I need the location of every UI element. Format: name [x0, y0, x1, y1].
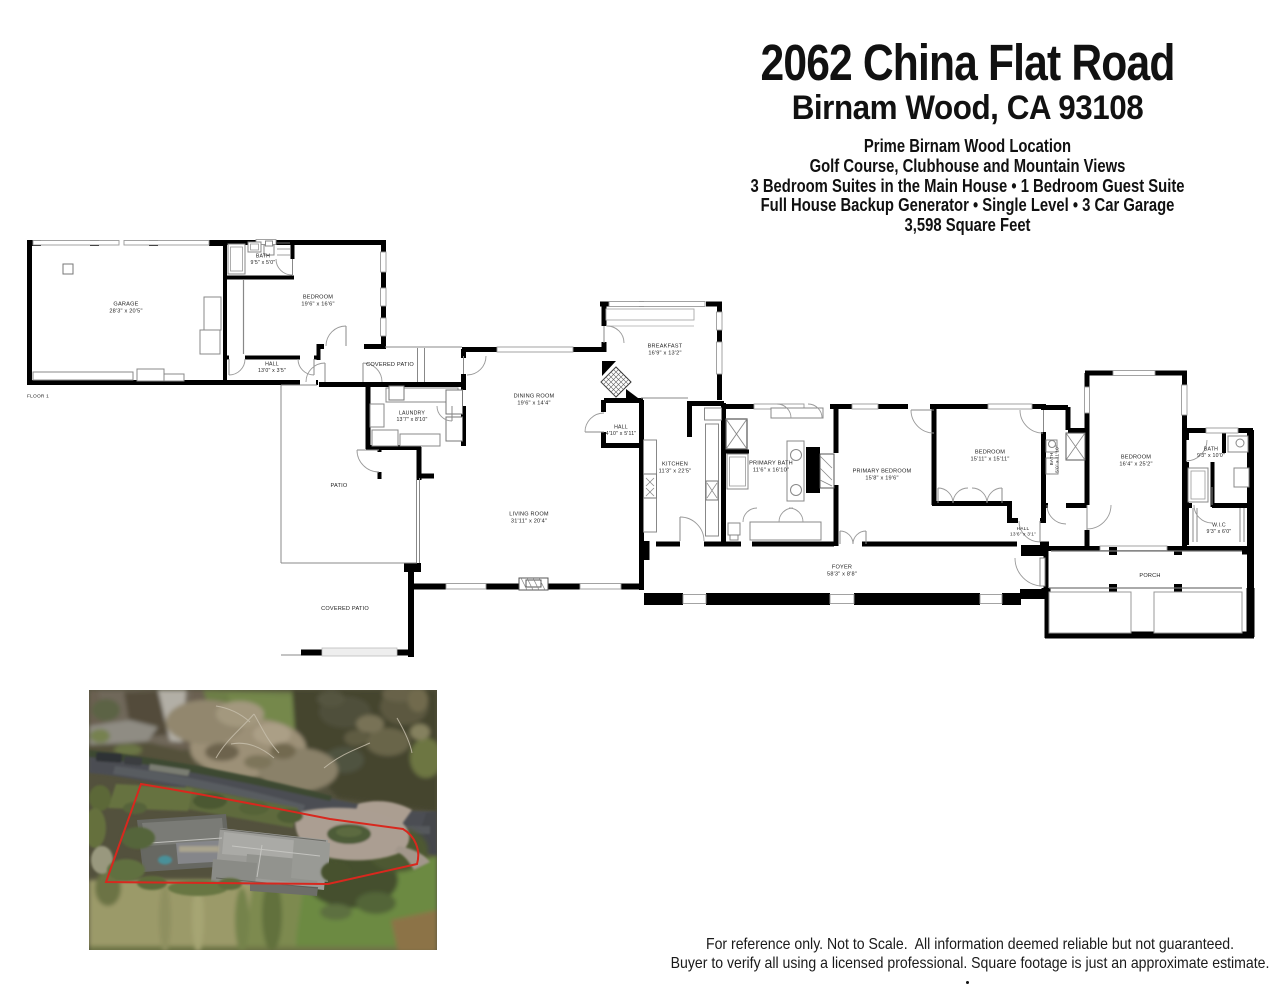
svg-text:4'10" x 5'11": 4'10" x 5'11" [606, 431, 637, 437]
svg-text:BEDROOM: BEDROOM [975, 450, 1005, 456]
svg-text:COVERED PATIO: COVERED PATIO [321, 606, 369, 612]
svg-text:9'3" x 6'0": 9'3" x 6'0" [1207, 529, 1232, 535]
svg-text:LIVING ROOM: LIVING ROOM [509, 512, 549, 518]
svg-text:HALL: HALL [614, 425, 628, 431]
svg-text:COVERED PATIO: COVERED PATIO [366, 362, 414, 368]
svg-text:5'0" x 11'10": 5'0" x 11'10" [1054, 445, 1059, 473]
svg-text:FOYER: FOYER [832, 565, 852, 571]
svg-text:BEDROOM: BEDROOM [303, 295, 333, 301]
svg-text:9'5" x 5'0": 9'5" x 5'0" [251, 260, 276, 266]
svg-text:BATH: BATH [1204, 447, 1218, 453]
svg-text:11'3" x 22'5": 11'3" x 22'5" [659, 468, 692, 474]
svg-text:DINING ROOM: DINING ROOM [514, 394, 555, 400]
svg-text:GARAGE: GARAGE [113, 302, 138, 308]
svg-text:BATH: BATH [1049, 453, 1054, 466]
svg-text:11'6" x 16'10": 11'6" x 16'10" [753, 467, 789, 473]
svg-text:15'11" x 15'11": 15'11" x 15'11" [970, 456, 1009, 462]
svg-text:31'11" x 20'4": 31'11" x 20'4" [511, 518, 547, 524]
svg-text:19'6" x 16'6": 19'6" x 16'6" [301, 301, 334, 307]
svg-text:HALL: HALL [1017, 526, 1030, 532]
svg-text:HALL: HALL [265, 362, 279, 368]
svg-text:BEDROOM: BEDROOM [1121, 455, 1151, 461]
svg-text:BREAKFAST: BREAKFAST [648, 344, 683, 350]
svg-text:W.I.C: W.I.C [1212, 523, 1226, 529]
svg-text:13'6" x 3'1": 13'6" x 3'1" [1010, 532, 1036, 538]
svg-text:FLOOR 1: FLOOR 1 [27, 394, 49, 400]
svg-text:LAUNDRY: LAUNDRY [399, 411, 425, 417]
svg-text:9'3" x 10'0": 9'3" x 10'0" [1197, 453, 1225, 459]
svg-text:PORCH: PORCH [1139, 573, 1160, 579]
svg-text:13'0" x 3'5": 13'0" x 3'5" [258, 368, 286, 374]
svg-text:19'6" x 14'4": 19'6" x 14'4" [517, 400, 550, 406]
svg-text:28'3" x 20'5": 28'3" x 20'5" [109, 308, 142, 314]
svg-text:KITCHEN: KITCHEN [662, 462, 688, 468]
svg-text:16'4" x 25'2": 16'4" x 25'2" [1119, 461, 1152, 467]
svg-text:13'7" x 8'10": 13'7" x 8'10" [396, 417, 427, 423]
svg-text:15'8" x 19'6": 15'8" x 19'6" [865, 475, 898, 481]
svg-text:PRIMARY BEDROOM: PRIMARY BEDROOM [853, 469, 912, 475]
svg-text:16'9" x 13'2": 16'9" x 13'2" [648, 350, 681, 356]
svg-text:PATIO: PATIO [331, 483, 348, 489]
svg-text:PRIMARY BATH: PRIMARY BATH [749, 461, 793, 467]
svg-text:BATH: BATH [256, 254, 270, 260]
svg-text:58'3" x 8'8": 58'3" x 8'8" [827, 571, 857, 577]
